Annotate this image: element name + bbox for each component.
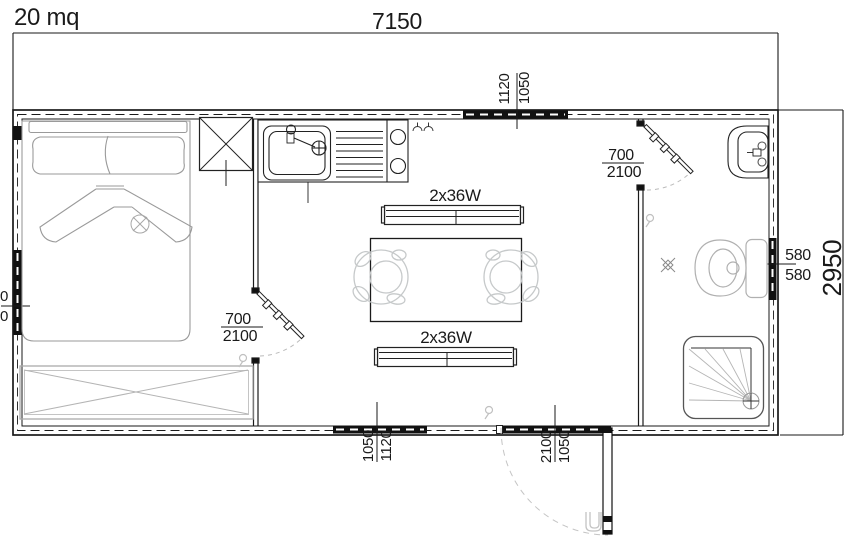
bedroom-door-label-height: 2100	[223, 328, 258, 345]
shower-drain-icon	[743, 393, 759, 409]
bottom-window-label-left: 1050	[360, 430, 377, 462]
bathroom-door-label-width: 700	[608, 147, 634, 164]
shower	[684, 337, 764, 419]
entrance-door-handle-icon	[586, 512, 601, 531]
dimension-width	[13, 33, 778, 110]
dining-table	[371, 239, 522, 322]
toilet	[695, 240, 767, 298]
light-fixture-bottom-label: 2x36W	[420, 328, 472, 347]
washbasin	[728, 126, 768, 178]
top-window-label-left: 1120	[496, 73, 513, 104]
bathroom-ceiling-light-icon	[661, 258, 675, 272]
bedroom-door-label-width: 700	[225, 311, 251, 328]
left-window-label-top: 0	[0, 288, 8, 305]
right-window-label-top: 580	[785, 247, 811, 264]
top-window-label-right: 1050	[516, 72, 533, 104]
floor-plan-svg: 20 mq 7150 2950	[0, 0, 851, 541]
entrance-door-label-right: 1050	[556, 431, 573, 463]
bathroom-door-label-height: 2100	[607, 164, 642, 181]
left-window-label-bottom: 0	[0, 308, 8, 325]
light-fixture-top-label: 2x36W	[429, 186, 481, 205]
dimension-width-label: 7150	[372, 8, 422, 34]
bottom-window-label-right: 1120	[378, 430, 395, 461]
plan-title: 20 mq	[14, 4, 79, 31]
light-fixture-bottom	[375, 348, 517, 367]
dimension-height-label: 2950	[817, 240, 847, 297]
right-window-label-bottom: 580	[785, 267, 811, 284]
wall-post	[13, 126, 22, 140]
light-fixture-top	[382, 206, 524, 225]
floor-plan-page: 20 mq 7150 2950	[0, 0, 851, 541]
entrance-door-label-left: 2100	[538, 431, 555, 463]
